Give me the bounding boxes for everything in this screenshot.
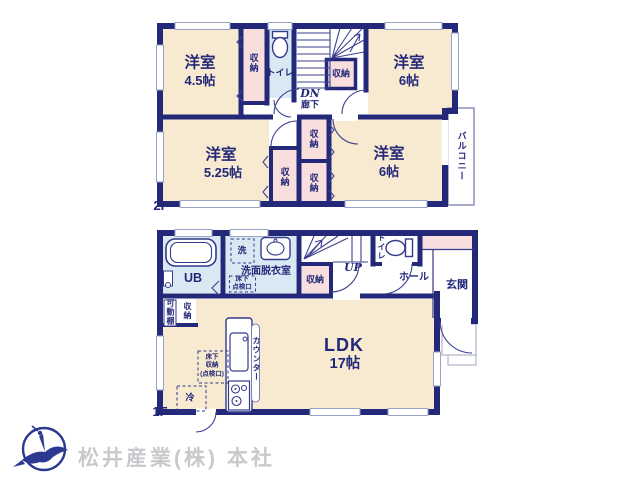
storage-1f-label: 収納	[306, 274, 324, 285]
counter-label: カウンター	[251, 337, 261, 382]
closet-b-label: 収納	[332, 68, 350, 79]
ldk-name: LDK	[324, 334, 364, 357]
unit-bath-label: UB	[184, 271, 202, 287]
floorplan-drawing	[0, 0, 640, 480]
bedroom-525-name: 洋室	[205, 145, 236, 164]
hall-label: ホール	[399, 272, 429, 285]
company-watermark: 松井産業(株) 本社	[78, 442, 275, 472]
bedroom-525-area: 5.25帖	[204, 165, 242, 181]
company-logo-bird-icon	[13, 426, 68, 470]
shelf-storage-label: 収納	[182, 302, 192, 320]
closet-a-label: 収納	[247, 53, 258, 73]
bedroom-45-name: 洋室	[184, 53, 215, 72]
stairs-up-label: UP	[344, 261, 362, 275]
entrance-label: 玄関	[446, 279, 468, 293]
floorplan-page: 2F 洋室 4.5帖 洋室 6帖 洋室 5.25帖 洋室 6帖 収納 トイレ 収…	[0, 0, 640, 480]
ldk-area: 17帖	[330, 355, 361, 373]
floor1-label: 1F	[152, 404, 167, 420]
bedroom-6-bottom-name: 洋室	[373, 144, 404, 163]
washer-label: 洗	[237, 245, 246, 256]
movable-shelf-label: 可動棚	[165, 299, 175, 326]
bedroom-6-top-area: 6帖	[399, 73, 419, 89]
bedroom-6-bottom-area: 6帖	[379, 164, 399, 180]
toilet-2f-label: トイレ	[266, 67, 293, 78]
bedroom-45-area: 4.5帖	[184, 73, 215, 89]
fridge-label: 冷	[185, 392, 194, 403]
entrance-porch	[442, 324, 476, 365]
hallway-label: 廊下	[301, 99, 319, 110]
closet-d-label: 収納	[278, 167, 289, 187]
stairs-1f	[304, 236, 368, 262]
underfloor-storage-label: 床下 収納 (点検口)	[200, 353, 224, 378]
balcony-label: バルコニー	[455, 131, 466, 181]
floor2-label: 2F	[153, 198, 168, 214]
bedroom-6-top-name: 洋室	[393, 53, 424, 72]
closet-c-label: 収納	[307, 129, 318, 149]
toilet-1f-label: トイレ	[376, 234, 386, 261]
underfloor-hatch-label: 床下 点検口	[232, 276, 252, 293]
closet-e-label: 収納	[307, 173, 318, 193]
